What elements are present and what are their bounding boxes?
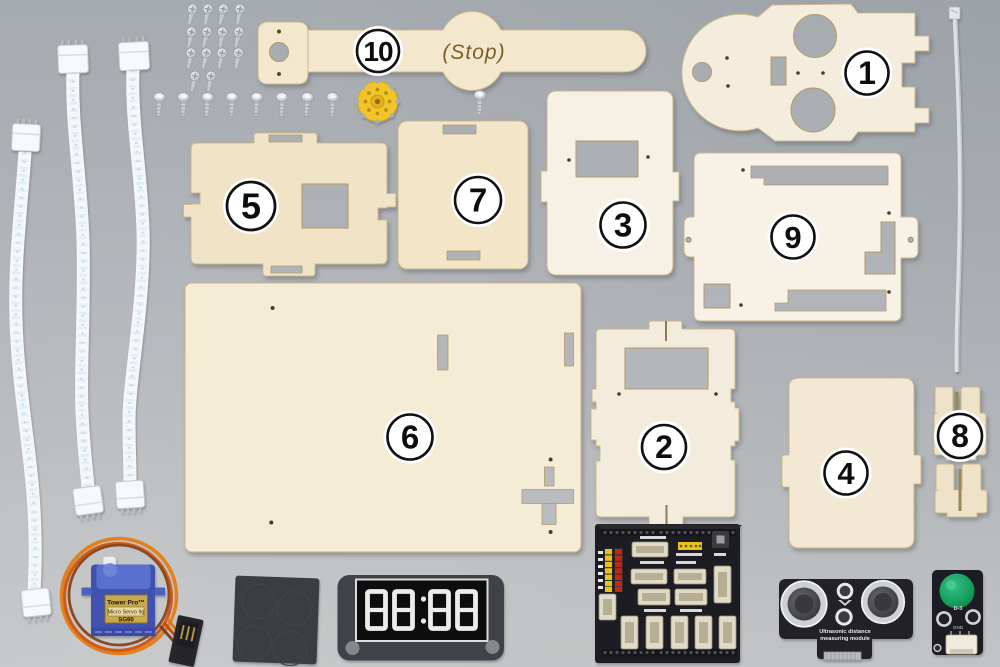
svg-text:3: 3 bbox=[614, 207, 632, 244]
svg-text:measuring module: measuring module bbox=[820, 636, 870, 642]
svg-text:10: 10 bbox=[363, 36, 393, 67]
svg-text:6: 6 bbox=[401, 419, 419, 456]
svg-text:D-3: D-3 bbox=[954, 606, 963, 612]
svg-text:7: 7 bbox=[469, 182, 487, 219]
svg-text:(Stop): (Stop) bbox=[442, 41, 505, 64]
svg-text:Micro Servo 9g: Micro Servo 9g bbox=[108, 610, 145, 616]
svg-text:9: 9 bbox=[784, 220, 801, 255]
svg-text:Tower Pro™: Tower Pro™ bbox=[107, 600, 145, 607]
svg-text:4: 4 bbox=[837, 456, 855, 491]
svg-text:8: 8 bbox=[951, 418, 969, 454]
svg-text:5: 5 bbox=[241, 186, 261, 227]
svg-text:SG90: SG90 bbox=[118, 618, 134, 624]
svg-text:GND: GND bbox=[953, 625, 964, 630]
svg-text:2: 2 bbox=[655, 429, 673, 465]
svg-text:1: 1 bbox=[858, 55, 876, 91]
svg-text:Ultrasonic distance: Ultrasonic distance bbox=[819, 629, 871, 635]
